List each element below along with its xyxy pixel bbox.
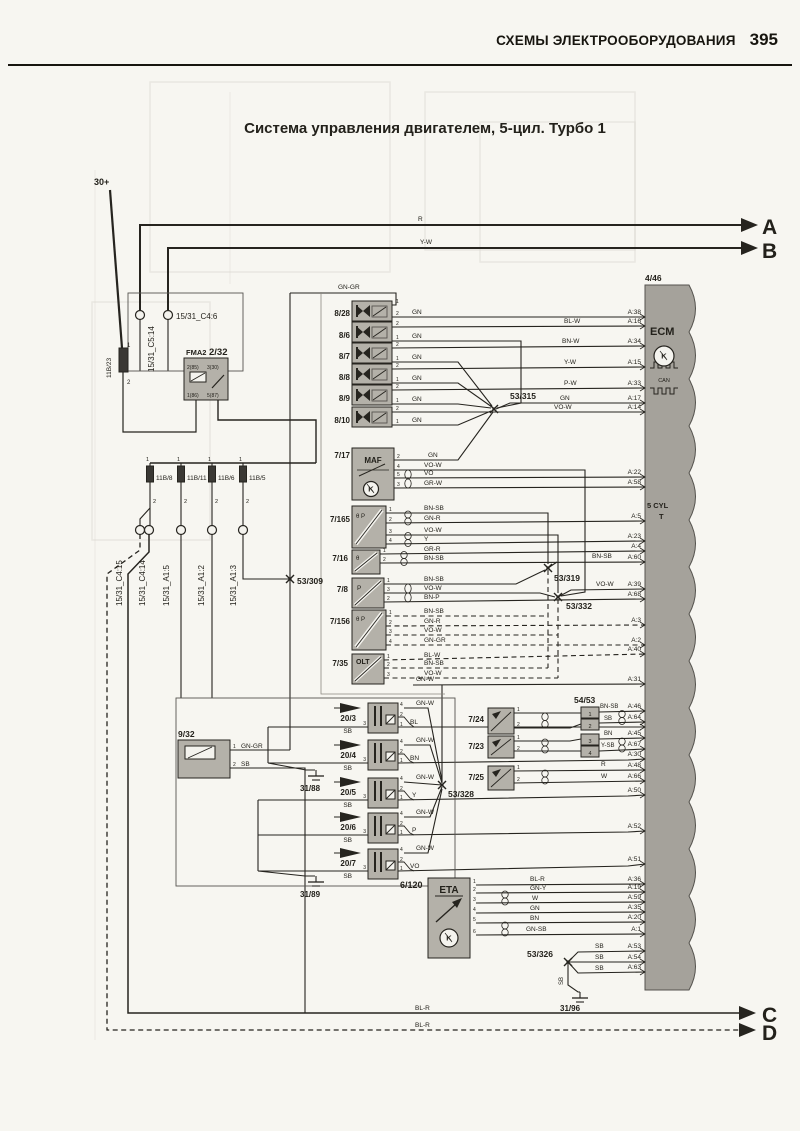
- ecm-name: ECM: [650, 326, 674, 338]
- p20-6-2: 2: [400, 821, 403, 827]
- s7156-sym: θ P: [356, 617, 365, 623]
- c-gn-3: GN: [412, 354, 422, 361]
- conn-a1-3-circle: [239, 526, 248, 535]
- p20-5-4: 4: [400, 776, 403, 782]
- p20-3-3: 3: [363, 721, 366, 727]
- c-sb-1: SB: [343, 728, 352, 735]
- pin-a34: A:34: [628, 338, 642, 345]
- p8-9-1: 1: [396, 398, 399, 404]
- pin-a35: A:35: [628, 904, 642, 911]
- ghost-box-2: [425, 92, 635, 250]
- pin-a19: A:19: [628, 884, 642, 891]
- p20-3-2: 2: [400, 712, 403, 718]
- p-eta-1: 1: [473, 879, 476, 885]
- fuse4-pin1: 1: [239, 457, 242, 463]
- comp-20-7: 20/7: [340, 859, 356, 868]
- comp-8-8: 8/8: [339, 373, 351, 382]
- w-coil3-p1: [398, 795, 645, 800]
- ecm-5cyl: 5 CYL: [647, 501, 669, 510]
- conn-a1-2-circle: [208, 526, 217, 535]
- relay-name: FMA2: [186, 348, 206, 357]
- c-bnsb-4: BN-SB: [424, 608, 444, 615]
- p7-17-2: 2: [397, 454, 400, 460]
- p7-156-4: 4: [389, 639, 392, 645]
- p8-6-2: 2: [396, 321, 399, 327]
- pin-a53: A:53: [628, 943, 642, 950]
- p9-32-1: 1: [233, 744, 236, 750]
- twisted-pair-icon: [405, 584, 411, 593]
- c-ysb-a67: Y-SB: [601, 743, 614, 749]
- c-bnsb-a60: BN-SB: [592, 553, 612, 560]
- w-8-9-p2: [392, 388, 645, 390]
- pin-a20: A:20: [628, 914, 642, 921]
- pin-a60: A:60: [628, 554, 642, 561]
- c-gn-a17: GN: [560, 395, 570, 402]
- c-bnsb-a46: BN-SB: [600, 704, 618, 710]
- c-blw-a16: BL-W: [564, 318, 581, 325]
- p-eta-4: 4: [473, 907, 476, 913]
- conn-a1-3-label: 15/31_A1:3: [229, 565, 238, 606]
- w-eta-p3: [476, 902, 645, 903]
- comp-8-6: 8/6: [339, 331, 351, 340]
- wire-y-w-label: Y-W: [420, 239, 433, 246]
- ghost-box-1: [150, 82, 390, 272]
- gnd-31-96-label: 31/96: [560, 1004, 581, 1013]
- c-gnw-3: GN-W: [416, 774, 435, 781]
- relay-pin-86: 1(86): [187, 393, 199, 399]
- gnd-31-89-label: 31/89: [300, 890, 321, 899]
- p20-7-4: 4: [400, 847, 403, 853]
- conn-c4-6-circle: [164, 311, 173, 320]
- fuse2-pin1: 1: [177, 457, 180, 463]
- c-gnw-5: GN-W: [416, 845, 435, 852]
- w-7-25-p1: [514, 770, 645, 771]
- cell-3-num: 3: [588, 739, 591, 745]
- c-bl-1: BL: [410, 719, 418, 726]
- p7-156-2: 2: [389, 620, 392, 626]
- c-bnsb-1: BN-SB: [424, 505, 444, 512]
- pin-a14: A:14: [628, 404, 642, 411]
- fuse3-body: [209, 466, 216, 482]
- p7-16-1: 1: [383, 548, 386, 554]
- conn-c4-14-label: 15/31_C4:14: [138, 560, 147, 606]
- p20-6-4: 4: [400, 811, 403, 817]
- p8-8-1: 1: [396, 377, 399, 383]
- p7-17-5: 5: [397, 472, 400, 478]
- pin-a40: A:40: [628, 646, 642, 653]
- cell-2-num: 2: [588, 724, 591, 730]
- c-gnw-2: GN-W: [416, 737, 435, 744]
- fuse2-body: [178, 466, 185, 482]
- fuse1-body: [147, 466, 154, 482]
- comp-20-4: 20/4: [340, 751, 356, 760]
- arrow-b: [741, 241, 758, 255]
- c-bnsb-3: BN-SB: [424, 576, 444, 583]
- c-sb-3: SB: [343, 802, 352, 809]
- p7-24-1: 1: [517, 707, 520, 713]
- pin-a68: A:68: [628, 591, 642, 598]
- p7-23-1: 1: [517, 735, 520, 741]
- j-53-328-label: 53/328: [448, 789, 474, 799]
- fuse2-pin2: 2: [184, 499, 187, 505]
- cell-4-num: 4: [588, 751, 591, 757]
- twisted-pair-icon: [401, 552, 407, 559]
- p7-165-4: 4: [389, 538, 392, 544]
- c-pw-a33: P-W: [564, 380, 578, 387]
- c-gnsb-a1: GN-SB: [526, 926, 547, 933]
- w-sb-gnd1: [268, 763, 315, 770]
- c-y-1: Y: [424, 536, 429, 543]
- s78-sym: P: [357, 585, 361, 592]
- w-coil5-p1: [398, 864, 645, 871]
- c-gngr-3: GN-GR: [241, 743, 263, 750]
- w-eta-p6: [476, 934, 645, 935]
- fuse1-pin1: 1: [146, 457, 149, 463]
- arrow-d: [739, 1023, 756, 1037]
- c-gnr-2: GN-R: [424, 618, 441, 625]
- arrow-d-label: D: [762, 1022, 777, 1045]
- p-eta-3: 3: [473, 897, 476, 903]
- maf-label: MAF: [364, 456, 381, 465]
- spark-plug-4: [340, 812, 361, 822]
- c-blr-c: BL-R: [415, 1005, 430, 1012]
- p7-35-3: 3: [387, 672, 390, 678]
- pin-a54: A:54: [628, 954, 642, 961]
- j-53-332-label: 53/332: [566, 601, 592, 611]
- pin-a15: A:15: [628, 359, 642, 366]
- relay-pin-30: 3(30): [207, 365, 219, 371]
- comp-7-25: 7/25: [468, 773, 484, 782]
- c-gnw-0: GN-W: [416, 676, 435, 683]
- c-vow-3: VO-W: [424, 585, 443, 592]
- p8-10-1: 1: [396, 419, 399, 425]
- fuse-11b11-label: 11B/11: [187, 475, 207, 482]
- twisted-pair-icon: [405, 518, 411, 525]
- pin-a33: A:33: [628, 380, 642, 387]
- pin-a1: A:1: [631, 926, 641, 933]
- c-gn-1: GN: [412, 309, 422, 316]
- conn-c4-15-circle: [136, 526, 145, 535]
- ecm-t: T: [659, 512, 664, 521]
- pin-a48: A:48: [628, 762, 642, 769]
- arrow-a-label: A: [762, 216, 777, 239]
- fuse3-pin1: 1: [208, 457, 211, 463]
- w-f1-branch: [140, 508, 150, 526]
- c-gn-2: GN: [412, 333, 422, 340]
- p7-165-1: 1: [389, 507, 392, 513]
- p8-9-2: 2: [396, 384, 399, 390]
- comp-8-10: 8/10: [334, 416, 350, 425]
- c-bn-a45: BN: [604, 731, 612, 737]
- twisted-pair-icon: [542, 746, 548, 753]
- c-w-a66: W: [601, 773, 608, 780]
- fuse-11b6-label: 11B/6: [218, 475, 235, 482]
- c-vow-2: VO-W: [424, 527, 443, 534]
- j-53-315-label: 53/315: [510, 391, 536, 401]
- c-vo-1: VO: [424, 470, 433, 477]
- fuse4-body: [240, 466, 247, 482]
- pin-a2: A:2: [631, 637, 641, 644]
- twisted-pair-icon: [405, 593, 411, 602]
- p20-5-2: 2: [400, 786, 403, 792]
- c-gn-a35: GN: [530, 905, 540, 912]
- c-gnw-1: GN-W: [416, 700, 435, 707]
- p20-4-1: 1: [400, 758, 403, 764]
- w-7-24-o1: [599, 711, 645, 712]
- relay-id: 2/32: [209, 347, 228, 358]
- p9-32-2: 2: [233, 762, 236, 768]
- c-w-a59: W: [532, 895, 539, 902]
- p7-156-3: 3: [389, 629, 392, 635]
- p-eta-6: 6: [473, 929, 476, 935]
- p7-165-3: 3: [389, 529, 392, 535]
- comp-7-156: 7/156: [330, 617, 351, 626]
- p20-5-3: 3: [363, 794, 366, 800]
- w-9-32-p2: [230, 768, 305, 1013]
- p8-6-1: 1: [396, 335, 399, 341]
- w-7-16-p2: [380, 562, 645, 563]
- pin-a5: A:5: [631, 513, 641, 520]
- p20-4-4: 4: [400, 739, 403, 745]
- c-sb-a63: SB: [595, 965, 604, 972]
- conn-c5-14-label: 15/31_C5:14: [147, 326, 156, 372]
- w-7-17-p2: [394, 412, 493, 460]
- c-sb-5: SB: [343, 873, 352, 880]
- p7-8-1: 1: [387, 578, 390, 584]
- relay-pin-87: 5(87): [207, 393, 219, 399]
- w-sb-gnd2: [258, 871, 315, 876]
- page-title: Система управления двигателем, 5-цил. Ту…: [244, 120, 606, 137]
- p7-35-2: 2: [387, 662, 390, 668]
- fuse-11b5-label: 11B/5: [249, 475, 266, 482]
- junction-53-319-dot: [546, 566, 549, 569]
- c-gn-7: GN: [428, 452, 438, 459]
- pin-a64: A:64: [628, 714, 642, 721]
- spark-plug-2: [340, 740, 361, 750]
- fuse23-body: [119, 348, 128, 372]
- p7-17-4: 4: [397, 464, 400, 470]
- arrow-a: [741, 218, 758, 232]
- p7-25-2: 2: [517, 777, 520, 783]
- comp-7-23: 7/23: [468, 742, 484, 751]
- p7-16-2: 2: [383, 557, 386, 563]
- fuse-11b8-label: 11B/8: [156, 475, 173, 482]
- j-53-326-label: 53/326: [527, 949, 553, 959]
- p8-28-1: 1: [396, 299, 399, 305]
- relay-pin-85: 2(85): [187, 365, 199, 371]
- p8-28-2: 2: [396, 311, 399, 317]
- pin-a50: A:50: [628, 787, 642, 794]
- p7-156-1: 1: [389, 610, 392, 616]
- comp-7-16: 7/16: [332, 554, 348, 563]
- w-8-7-p2: [392, 346, 645, 348]
- w-coil3-gnw: [404, 782, 442, 785]
- w-coil5-gnw: [404, 789, 442, 853]
- w-coil4-p1: [398, 831, 645, 835]
- c-blr-d: BL-R: [415, 1022, 430, 1029]
- w-8-10-p1: [392, 411, 491, 425]
- pin-a31: A:31: [628, 676, 642, 683]
- fuse3-pin2: 2: [215, 499, 218, 505]
- c-gnw-4: GN-W: [416, 809, 435, 816]
- c-vo-2: VO: [410, 863, 419, 870]
- ecm-can-label: CAN: [658, 378, 670, 384]
- wiring-diagram: KKKСистема управления двигателем, 5-цил.…: [0, 0, 800, 1131]
- junction-53-315-dot: [492, 407, 495, 410]
- comp-20-6: 20/6: [340, 823, 356, 832]
- j-53-319-label: 53/319: [554, 573, 580, 583]
- conn-c4-14-circle: [145, 526, 154, 535]
- p7-35-1: 1: [387, 654, 390, 660]
- twisted-pair-icon: [405, 540, 411, 547]
- twisted-pair-icon: [619, 718, 625, 725]
- w-eta-p5: [476, 922, 645, 923]
- comp-8-7: 8/7: [339, 352, 351, 361]
- w-eta-p2: [476, 892, 645, 893]
- pin-a16: A:16: [628, 318, 642, 325]
- w-7-156-p2: [386, 625, 645, 626]
- pin-a17: A:17: [628, 395, 642, 402]
- c-sb-6: SB: [241, 761, 250, 768]
- c-bnsb-2: BN-SB: [424, 555, 444, 562]
- comp-20-3: 20/3: [340, 714, 356, 723]
- fuse4-pin2: 2: [246, 499, 249, 505]
- pin-a36: A:36: [628, 876, 642, 883]
- spark-plug-5: [340, 848, 361, 858]
- fuse-11b23-label: 11B/23: [106, 357, 113, 378]
- c-gn-6: GN: [412, 417, 422, 424]
- c-sb-a54: SB: [595, 954, 604, 961]
- p7-17-3: 3: [397, 482, 400, 488]
- cell-1-num: 1: [588, 712, 591, 718]
- w-8-6-p2: [392, 326, 645, 327]
- w-326-gnd: [568, 962, 580, 992]
- j-53-309-label: 53/309: [297, 576, 323, 586]
- c-bnsb-5: BN-SB: [424, 660, 444, 667]
- c-blr-a36: BL-R: [530, 876, 545, 883]
- w-8-8-p2: [392, 367, 645, 369]
- pin-a67: A:67: [628, 741, 642, 748]
- w-30-main: [110, 190, 122, 348]
- p20-7-3: 3: [363, 865, 366, 871]
- p20-7-1: 1: [400, 866, 403, 872]
- twisted-pair-icon: [502, 891, 508, 898]
- s7165-sym: θ P: [356, 514, 365, 520]
- c-sb-4: SB: [343, 837, 352, 844]
- pin-a39: A:39: [628, 581, 642, 588]
- ghost-box-4: [480, 122, 635, 262]
- p20-3-4: 4: [400, 702, 403, 708]
- c-vow-a14: VO-W: [554, 404, 573, 411]
- pin-a63: A:63: [628, 964, 642, 971]
- c-grr-1: GR-R: [424, 546, 441, 553]
- twisted-pair-icon: [405, 479, 411, 488]
- fuse-11b23-pin2: 2: [127, 380, 131, 386]
- comp-7-8: 7/8: [337, 585, 349, 594]
- twisted-pair-icon: [502, 898, 508, 905]
- pin-a30: A:30: [628, 751, 642, 758]
- p7-23-2: 2: [517, 746, 520, 752]
- comp-7-165: 7/165: [330, 515, 351, 524]
- w-7-17-p5: [394, 477, 645, 478]
- pin-a46: A:46: [628, 703, 642, 710]
- p20-6-1: 1: [400, 830, 403, 836]
- c-bnp-1: BN-P: [424, 594, 440, 601]
- c-gny-a19: GN-Y: [530, 885, 547, 892]
- junction-53-328-dot: [440, 783, 443, 786]
- comp-8-9: 8/9: [339, 394, 351, 403]
- junction-53-326-dot: [566, 960, 569, 963]
- p8-8-2: 2: [396, 363, 399, 369]
- w-7-24-o2: [599, 722, 645, 723]
- pin-a4: A:4: [631, 543, 641, 550]
- pin-a22: A:22: [628, 469, 642, 476]
- p7-8-2: 2: [387, 596, 390, 602]
- s735-sym: OLT: [356, 659, 370, 666]
- c-gnr-1: GN-R: [424, 515, 441, 522]
- p8-7-2: 2: [396, 342, 399, 348]
- w-gnw-a31: [413, 684, 645, 685]
- c-gn-4: GN: [412, 375, 422, 382]
- battery-30-label: 30+: [94, 177, 109, 187]
- w-a13-gngr: [243, 534, 290, 579]
- comp-20-5: 20/5: [340, 788, 356, 797]
- c-sb-rot: SB: [559, 977, 565, 985]
- c-yw-a15: Y-W: [564, 359, 577, 366]
- pin-a52: A:52: [628, 823, 642, 830]
- junction-53-332-dot: [556, 595, 559, 598]
- comp-7-17: 7/17: [334, 451, 350, 460]
- c-sb-a64: SB: [604, 716, 612, 722]
- p8-10-2: 2: [396, 406, 399, 412]
- w-7-25-p2: [514, 781, 645, 783]
- pin-a51: A:51: [628, 856, 642, 863]
- conn-a1-2-label: 15/31_A1:2: [197, 565, 206, 606]
- conn-54-53-label: 54/53: [574, 695, 596, 705]
- p7-25-1: 1: [517, 765, 520, 771]
- ecm-id: 4/46: [645, 273, 662, 283]
- c-bnw-a34: BN-W: [562, 338, 580, 345]
- conn-c4-6-label: 15/31_C4:6: [176, 312, 218, 321]
- p7-165-2: 2: [389, 517, 392, 523]
- wire-gn-gr-top: GN-GR: [338, 284, 360, 291]
- eta-name: ETA: [439, 885, 458, 896]
- comp-8-28: 8/28: [334, 309, 350, 318]
- comp-7-24: 7/24: [468, 715, 484, 724]
- c-sb-a53: SB: [595, 943, 604, 950]
- w-eta-p1: [476, 884, 645, 885]
- p-eta-5: 5: [473, 917, 476, 923]
- p20-4-3: 3: [363, 757, 366, 763]
- comp-7-35: 7/35: [332, 659, 348, 668]
- comp-6-120: 6/120: [400, 880, 423, 890]
- spark-plug-3: [340, 777, 361, 787]
- w-relay-87: [218, 400, 316, 463]
- pin-a58: A:58: [628, 479, 642, 486]
- c-sb-2: SB: [343, 765, 352, 772]
- c-gngr-2: GN-GR: [424, 637, 446, 644]
- arrow-c: [739, 1006, 756, 1020]
- pin-a59: A:59: [628, 894, 642, 901]
- w-7-8-p1: [384, 570, 545, 584]
- c-blw-2: BL-W: [424, 652, 441, 659]
- p20-6-3: 3: [363, 829, 366, 835]
- c-grw-1: GR-W: [424, 480, 443, 487]
- wire-r-label: R: [418, 216, 423, 223]
- c-r-a48: R: [601, 761, 606, 768]
- twisted-pair-icon: [619, 745, 625, 752]
- p7-24-2: 2: [517, 722, 520, 728]
